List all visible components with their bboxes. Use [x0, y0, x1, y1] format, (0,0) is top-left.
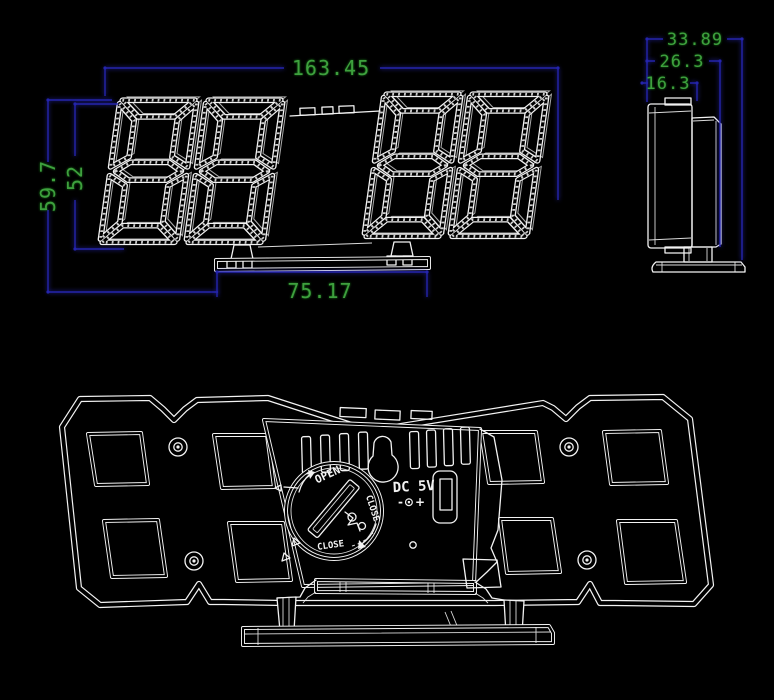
screw-hole	[578, 551, 596, 569]
digit-2	[186, 97, 288, 242]
front-display-height-dimension: 52	[63, 165, 87, 191]
side-view: 33.89 26.3 16.3	[640, 30, 745, 272]
stand-base-plate	[243, 626, 553, 645]
side-body	[648, 98, 721, 253]
front-width-dimension: 163.45	[292, 56, 370, 80]
side-front-depth-dimension: 16.3	[646, 74, 691, 94]
screw-hole	[169, 438, 187, 456]
side-stand	[652, 247, 745, 272]
back-view: OPEN CLOSE CLOSE DC 5V -⊙+	[62, 397, 711, 645]
back-stand	[243, 580, 553, 645]
side-total-depth-dimension: 33.89	[667, 30, 723, 50]
side-body-depth-dimension: 26.3	[660, 52, 705, 72]
digit-4	[450, 91, 552, 236]
top-buttons	[340, 408, 432, 422]
front-total-height-dimension: 59.7	[36, 160, 60, 212]
cad-drawing-canvas: 163.45 59.7 52 75.17	[0, 0, 774, 700]
screw-hole	[185, 552, 203, 570]
back-panel: OPEN CLOSE CLOSE DC 5V -⊙+	[264, 408, 502, 593]
front-stand	[216, 242, 429, 270]
front-base-width-dimension: 75.17	[287, 279, 352, 303]
dc-power-label: DC 5V	[392, 478, 435, 496]
led-clock-technical-drawing: 163.45 59.7 52 75.17	[0, 0, 774, 700]
screw-hole	[560, 438, 578, 456]
polarity-label: -⊙+	[398, 495, 426, 509]
front-view: 163.45 59.7 52 75.17	[36, 56, 560, 303]
